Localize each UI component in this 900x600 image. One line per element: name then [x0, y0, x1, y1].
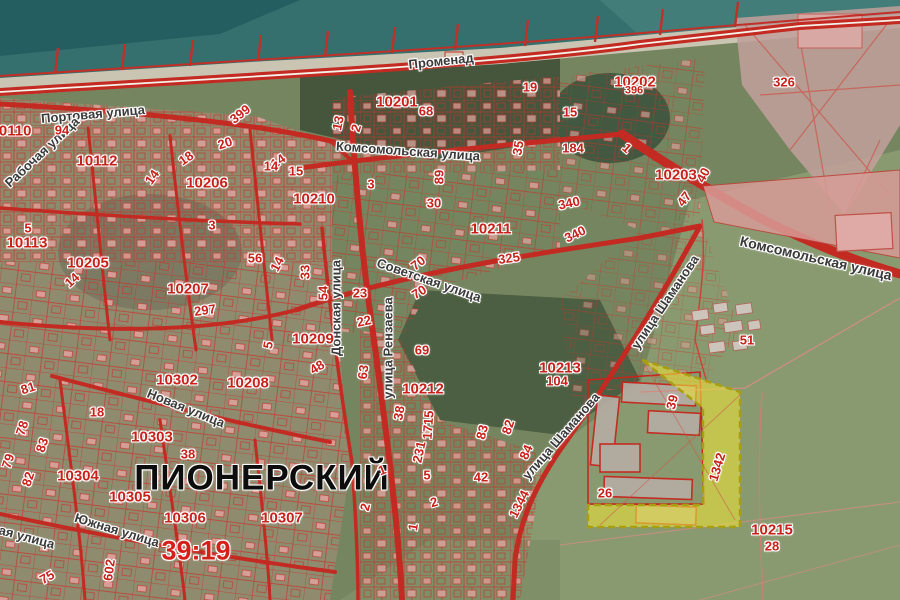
parcel-label: 26 — [598, 487, 612, 500]
quarter-label: 10303 — [131, 430, 173, 445]
cadastral-district-label: 39:19 — [161, 538, 230, 565]
quarter-label: 10307 — [261, 511, 303, 526]
parcel-label: 14 — [264, 160, 278, 173]
parcel-label: 38 — [181, 448, 195, 461]
parcel-label: 70 — [408, 253, 427, 272]
street-label: Рабочая улица — [2, 114, 81, 189]
parcel-label: 84 — [517, 443, 535, 462]
parcel-label: 14 — [143, 167, 162, 186]
street-label: Комсомольская улица — [336, 139, 481, 162]
parcel-label: 83 — [34, 436, 51, 454]
quarter-label: 10112 — [77, 154, 118, 169]
quarter-label: 10304 — [57, 469, 99, 484]
quarter-label: 10110 — [0, 124, 31, 139]
parcel-label: 340 — [562, 223, 587, 244]
parcel-label: 1344 — [507, 488, 532, 520]
quarter-label: 10211 — [471, 222, 512, 237]
parcel-label: 5 — [423, 469, 430, 482]
parcel-label: 231 — [410, 440, 427, 464]
label-layer: ПИОНЕРСКИЙ 39:19 ПроменадПортовая улицаР… — [0, 0, 900, 600]
parcel-label: 399 — [227, 102, 252, 126]
street-label: улица Рензаева — [382, 297, 395, 399]
parcel-label: 79 — [0, 452, 16, 470]
parcel-label: 14 — [62, 270, 81, 289]
parcel-label: 38 — [391, 405, 406, 422]
parcel-label: 18 — [90, 406, 104, 419]
parcel-label: 81 — [19, 380, 37, 397]
parcel-label: 1 — [620, 141, 634, 156]
parcel-label: 15 — [289, 165, 303, 178]
parcel-label: 82 — [20, 470, 37, 488]
street-label: Променад — [408, 51, 474, 71]
parcel-label: 340 — [557, 194, 581, 211]
parcel-label: 35 — [510, 140, 525, 157]
parcel-label: 3 — [208, 219, 215, 232]
parcel-label: 28 — [765, 540, 779, 553]
parcel-label: 70 — [409, 283, 428, 302]
quarter-label: 10305 — [109, 490, 151, 505]
parcel-label: 19 — [523, 81, 537, 94]
parcel-label: 83 — [474, 423, 490, 440]
parcel-label: 1 — [376, 463, 388, 478]
parcel-label: 78 — [14, 419, 31, 437]
map-viewport[interactable]: ПИОНЕРСКИЙ 39:19 ПроменадПортовая улицаР… — [0, 0, 900, 600]
parcel-label: 33 — [299, 265, 312, 279]
quarter-label: 10206 — [186, 176, 228, 191]
parcel-label: 30 — [427, 197, 441, 210]
parcel-label: 63 — [356, 364, 371, 380]
parcel-label: 23 — [353, 287, 367, 300]
street-label: улица Шаманова — [629, 253, 701, 352]
parcel-label: 297 — [193, 302, 216, 318]
parcel-label: 1715 — [421, 410, 436, 440]
quarter-label: 10302 — [156, 373, 198, 388]
parcel-label: 14 — [268, 152, 287, 171]
street-label: Южная улица — [0, 515, 56, 550]
parcel-label: 51 — [740, 334, 754, 347]
quarter-label: 10208 — [227, 376, 269, 391]
quarter-label: 10203 — [655, 168, 697, 183]
parcel-label: 5 — [261, 340, 275, 350]
parcel-label: 40 — [694, 166, 712, 185]
parcel-label: 1342 — [707, 451, 728, 482]
quarter-label: 10201 — [376, 95, 418, 110]
parcel-label: 20 — [216, 135, 234, 152]
street-label: Советская улица — [375, 256, 483, 304]
quarter-label: 10113 — [7, 236, 48, 251]
parcel-label: 2 — [358, 502, 372, 512]
parcel-label: 68 — [419, 105, 433, 118]
quarter-label: 10213 — [539, 361, 581, 376]
parcel-label: 104 — [546, 375, 568, 388]
parcel-label: 22 — [356, 313, 373, 329]
parcel-label: 47 — [674, 189, 693, 208]
parcel-label: 2 — [429, 495, 440, 509]
parcel-label: 54 — [317, 286, 330, 300]
parcel-label: 82 — [500, 418, 517, 436]
parcel-label: 184 — [562, 142, 584, 155]
quarter-label: 10207 — [167, 282, 209, 297]
street-label: Южная улица — [73, 511, 161, 549]
parcel-label: 13 — [330, 115, 346, 132]
parcel-label: 602 — [101, 558, 117, 581]
street-label: Портовая улица — [41, 103, 146, 125]
parcel-label: 2 — [349, 123, 364, 134]
parcel-label: 326 — [773, 76, 795, 89]
parcel-label: 15 — [563, 106, 577, 119]
quarter-label: 10202 — [614, 75, 656, 90]
parcel-label: 396 — [625, 86, 643, 97]
place-label: ПИОНЕРСКИЙ — [134, 461, 390, 496]
parcel-label: 94 — [55, 124, 69, 137]
parcel-label: 39 — [664, 393, 680, 410]
parcel-label: 18 — [176, 149, 195, 168]
parcel-label: 3 — [367, 178, 374, 191]
parcel-label: 14 — [268, 255, 286, 274]
parcel-label: 1 — [406, 522, 420, 531]
parcel-label: 69 — [415, 344, 429, 357]
street-label: Комсомольская улица — [739, 234, 894, 283]
street-label: Новая улица — [145, 387, 226, 430]
quarter-label: 10306 — [164, 511, 206, 526]
quarter-label: 10209 — [292, 332, 334, 347]
quarter-label: 10215 — [751, 523, 793, 538]
parcel-label: 48 — [307, 358, 326, 377]
parcel-label: 325 — [497, 250, 520, 266]
parcel-label: 75 — [37, 568, 56, 586]
parcel-label: 42 — [474, 471, 488, 484]
parcel-label: 56 — [248, 252, 262, 265]
quarter-label: 10210 — [293, 192, 335, 207]
quarter-label: 10212 — [402, 382, 444, 397]
parcel-label: 5 — [24, 222, 31, 235]
street-label: Донская улица — [330, 260, 343, 356]
quarter-label: 10205 — [67, 256, 109, 271]
street-label: улица Шаманова — [520, 390, 602, 482]
parcel-label: 89 — [433, 170, 446, 184]
